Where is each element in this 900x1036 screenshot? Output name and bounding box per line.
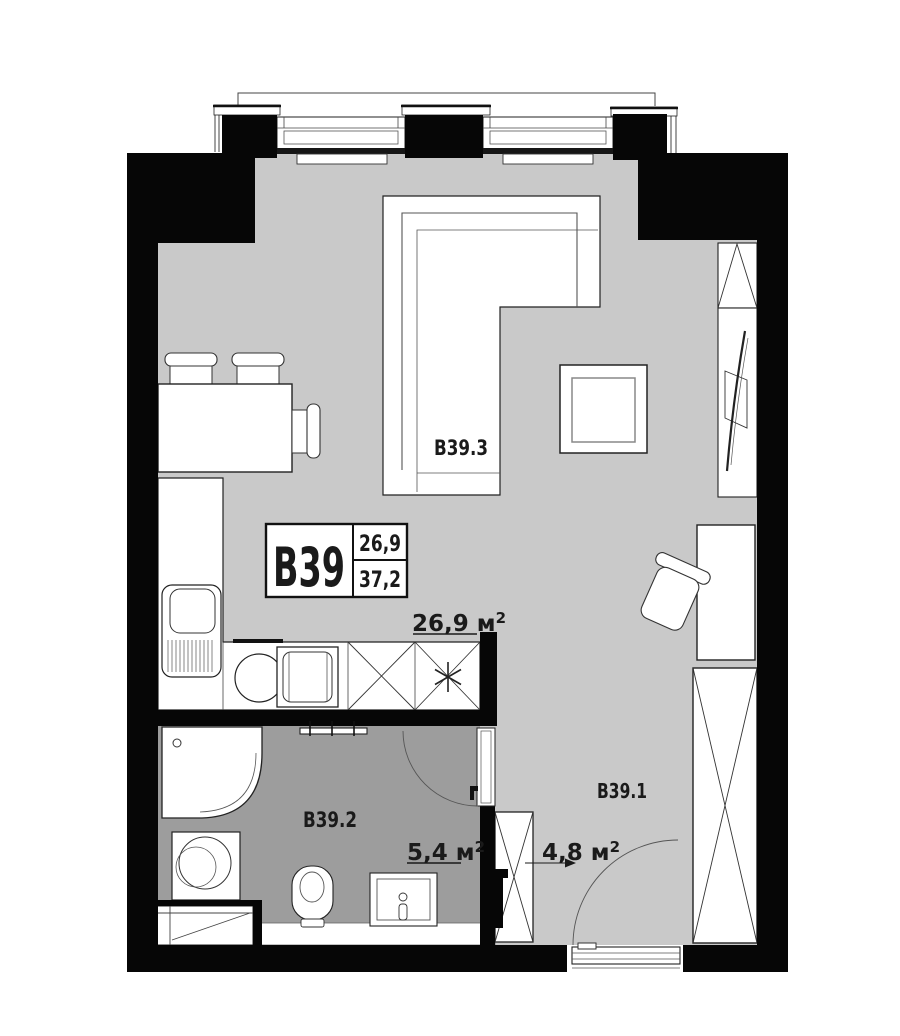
- storage-niche: [157, 906, 253, 945]
- unit-area-top: 26,9: [359, 532, 401, 557]
- bathroom-sink: [370, 873, 437, 926]
- window-right: [481, 117, 615, 154]
- bathroom-door-handle: [470, 786, 478, 791]
- wall-right: [757, 240, 788, 972]
- unit-id: B39: [273, 536, 345, 599]
- tv-cabinet: [718, 243, 757, 497]
- window-sill-left: [213, 105, 281, 115]
- desk: [697, 525, 755, 660]
- dining-table: [158, 384, 292, 472]
- wardrobe: [693, 668, 757, 943]
- wall-top-right-block: [638, 153, 788, 240]
- svg-text:26,9 м2: 26,9 м2: [412, 609, 506, 637]
- wall-top-left-block: [127, 153, 255, 243]
- wall-bottom: [127, 945, 788, 972]
- kitchen-hob-circle: [235, 654, 283, 702]
- window-sill-center: [401, 105, 491, 115]
- floor-plan: B39 26,9 37,2 B39.3 B39.2 B39.1 26,9 м2 …: [0, 0, 900, 1036]
- bathroom-door-leaf: [477, 728, 495, 806]
- floor-plan-sheet: B39 26,9 37,2 B39.3 B39.2 B39.1 26,9 м2 …: [0, 0, 900, 1036]
- duct-shaft-vertical: [495, 878, 503, 928]
- room-label-living: B39.3: [434, 436, 488, 460]
- wall-left: [127, 153, 158, 972]
- unit-info-card: B39 26,9 37,2: [266, 524, 407, 599]
- dining-chair-1: [165, 353, 217, 384]
- window-left: [275, 117, 407, 154]
- room-label-hallway: B39.1: [597, 779, 647, 803]
- dining-chair-2: [232, 353, 284, 384]
- wall-niche-top: [155, 900, 255, 906]
- svg-text:5,4 м2: 5,4 м2: [407, 838, 485, 866]
- area-label-living: 26,9 м2: [412, 609, 506, 637]
- interior-sill-right: [503, 154, 593, 164]
- svg-text:4,8 м2: 4,8 м2: [542, 838, 620, 866]
- wall-bathroom-top: [127, 710, 497, 726]
- entrance-door-leaf: [572, 947, 680, 964]
- counter-edge-mark: [233, 639, 283, 643]
- wall-niche-right: [253, 900, 262, 945]
- interior-sill-left: [297, 154, 387, 164]
- wall-bathroom-east: [480, 806, 495, 945]
- oven: [277, 647, 338, 707]
- unit-area-bottom: 37,2: [359, 568, 401, 593]
- coffee-table: [560, 365, 647, 453]
- wall-pier-2: [405, 115, 483, 158]
- washing-machine: [172, 832, 240, 900]
- entrance-door-handle: [578, 943, 596, 949]
- wall-kitchen-stub: [480, 632, 497, 710]
- area-label-bathroom: 5,4 м2: [407, 838, 485, 866]
- duct-shaft-horizontal: [495, 869, 508, 878]
- dining-chair-3: [292, 404, 320, 458]
- wall-pier-1: [222, 115, 277, 158]
- kitchen-sink: [162, 585, 221, 677]
- room-label-bathroom: B39.2: [303, 808, 357, 832]
